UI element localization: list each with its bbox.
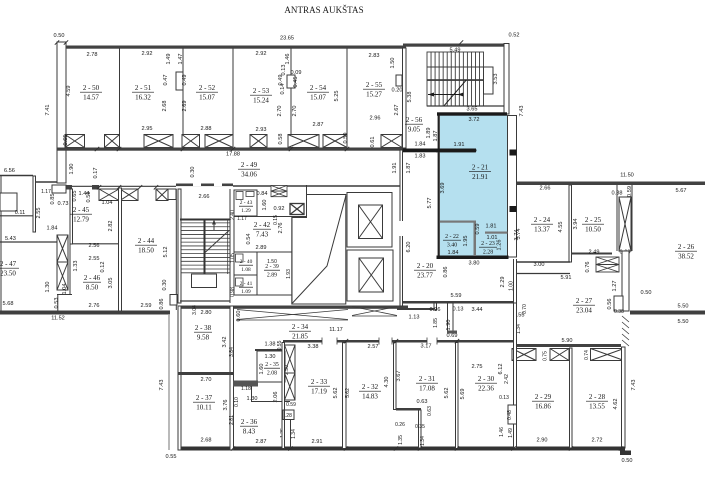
svg-text:1.17: 1.17	[237, 216, 247, 222]
svg-text:2 - 36: 2 - 36	[241, 418, 258, 426]
svg-text:1.27: 1.27	[612, 281, 618, 292]
svg-text:1.34: 1.34	[291, 429, 297, 439]
svg-text:21.91: 21.91	[472, 173, 488, 181]
svg-text:0.86: 0.86	[159, 299, 165, 310]
svg-text:6.56: 6.56	[4, 168, 15, 174]
svg-text:3.04: 3.04	[192, 305, 198, 315]
svg-text:2 - 38: 2 - 38	[195, 324, 212, 332]
svg-text:2.90: 2.90	[537, 438, 548, 444]
svg-text:11.52: 11.52	[51, 316, 65, 322]
svg-text:2.56: 2.56	[89, 243, 100, 249]
svg-text:3.67: 3.67	[396, 371, 402, 382]
svg-text:5.50: 5.50	[678, 304, 689, 310]
svg-text:2 - 45: 2 - 45	[73, 206, 90, 214]
svg-text:1.04: 1.04	[102, 200, 113, 206]
svg-text:0.12: 0.12	[100, 262, 106, 273]
svg-text:0.86: 0.86	[443, 267, 449, 278]
svg-text:7.43: 7.43	[256, 231, 269, 239]
svg-text:1.84: 1.84	[47, 226, 58, 232]
svg-text:0.58: 0.58	[278, 134, 284, 145]
svg-text:2.76: 2.76	[89, 303, 100, 309]
svg-text:0.14: 0.14	[280, 84, 286, 95]
svg-text:5.12: 5.12	[163, 247, 169, 258]
svg-text:4.30: 4.30	[384, 377, 390, 388]
svg-text:23.77: 23.77	[417, 272, 433, 280]
svg-text:1.84: 1.84	[415, 142, 426, 148]
svg-text:2 - 29: 2 - 29	[535, 393, 552, 401]
svg-text:16.86: 16.86	[535, 403, 551, 411]
svg-text:2.89: 2.89	[267, 273, 277, 279]
svg-text:0.59: 0.59	[475, 224, 481, 235]
svg-text:1.47: 1.47	[178, 54, 184, 65]
svg-text:0.13: 0.13	[453, 307, 464, 313]
svg-text:5.62: 5.62	[345, 388, 351, 398]
svg-text:5.38: 5.38	[407, 92, 413, 103]
svg-text:2.08: 2.08	[267, 370, 277, 376]
svg-text:2.83: 2.83	[369, 53, 380, 59]
svg-text:1.60: 1.60	[259, 364, 265, 375]
svg-text:2.68: 2.68	[162, 101, 168, 112]
svg-text:1.13: 1.13	[409, 315, 420, 321]
svg-text:1.60: 1.60	[262, 200, 268, 211]
svg-text:2.59: 2.59	[141, 303, 152, 309]
svg-text:22.36: 22.36	[478, 385, 494, 393]
svg-text:2.70: 2.70	[292, 106, 298, 117]
svg-text:2.87: 2.87	[256, 439, 267, 445]
svg-text:2.29: 2.29	[500, 277, 506, 288]
svg-text:1.90: 1.90	[446, 320, 452, 331]
svg-text:4.59: 4.59	[66, 86, 72, 97]
svg-text:34.06: 34.06	[241, 171, 257, 179]
svg-text:7.43: 7.43	[519, 106, 525, 117]
svg-text:1.04: 1.04	[62, 284, 68, 295]
svg-text:2 - 34: 2 - 34	[292, 323, 309, 331]
svg-text:0.59: 0.59	[343, 133, 349, 144]
svg-text:2 - 30: 2 - 30	[478, 375, 495, 383]
svg-text:0.15: 0.15	[273, 215, 279, 225]
svg-text:0.45: 0.45	[293, 77, 299, 88]
svg-text:3.38: 3.38	[308, 344, 319, 350]
svg-text:0.50: 0.50	[641, 290, 652, 296]
svg-text:2 - 42: 2 - 42	[254, 221, 271, 229]
svg-text:0.13: 0.13	[499, 395, 509, 401]
svg-text:3.74: 3.74	[516, 229, 522, 240]
svg-text:2 - 52: 2 - 52	[199, 84, 216, 92]
svg-text:4.62: 4.62	[613, 399, 619, 410]
svg-text:23.50: 23.50	[0, 270, 16, 278]
svg-text:23.65: 23.65	[280, 36, 294, 42]
svg-text:0.20: 0.20	[392, 88, 403, 94]
svg-text:7.41: 7.41	[45, 105, 51, 116]
svg-text:3.69: 3.69	[440, 183, 446, 194]
svg-text:2.80: 2.80	[201, 310, 212, 316]
svg-text:2.66: 2.66	[199, 194, 210, 200]
svg-text:0.59: 0.59	[286, 402, 296, 408]
svg-text:0.59: 0.59	[627, 186, 633, 197]
svg-text:2 - 55: 2 - 55	[366, 81, 383, 89]
svg-text:3.80: 3.80	[469, 261, 480, 267]
svg-text:12.79: 12.79	[73, 216, 89, 224]
svg-text:0.75: 0.75	[543, 351, 549, 361]
svg-text:1.83: 1.83	[415, 154, 426, 160]
svg-text:1.95: 1.95	[463, 236, 469, 247]
svg-text:0.60: 0.60	[236, 311, 242, 322]
svg-text:18.50: 18.50	[138, 247, 154, 255]
svg-text:2.40: 2.40	[230, 210, 236, 220]
svg-text:15.07: 15.07	[310, 94, 326, 102]
svg-text:0.74: 0.74	[584, 350, 590, 360]
svg-text:2.28: 2.28	[483, 249, 493, 255]
svg-text:1.93: 1.93	[286, 269, 292, 279]
svg-text:1.29: 1.29	[241, 208, 251, 214]
svg-text:1.33: 1.33	[73, 261, 79, 272]
svg-text:1.50: 1.50	[267, 259, 277, 265]
svg-text:0.61: 0.61	[370, 137, 376, 148]
svg-text:2 - 33: 2 - 33	[311, 378, 328, 386]
svg-text:5.25: 5.25	[334, 91, 340, 102]
svg-text:2 - 32: 2 - 32	[362, 383, 379, 391]
svg-text:0.63: 0.63	[417, 399, 428, 405]
svg-text:2 - 40: 2 - 40	[240, 259, 253, 265]
svg-text:13.55: 13.55	[589, 403, 605, 411]
svg-text:0.53: 0.53	[54, 298, 60, 309]
svg-text:0.49: 0.49	[182, 75, 188, 86]
svg-text:0.30: 0.30	[162, 280, 168, 291]
svg-text:2.93: 2.93	[256, 127, 267, 133]
svg-text:3.42: 3.42	[222, 337, 228, 348]
svg-text:0.52: 0.52	[509, 33, 520, 39]
svg-text:0.09: 0.09	[291, 70, 302, 76]
svg-text:14.57: 14.57	[83, 94, 99, 102]
svg-text:5.68: 5.68	[3, 301, 14, 307]
svg-text:0.59: 0.59	[86, 192, 92, 203]
svg-text:0.92: 0.92	[274, 206, 285, 212]
svg-text:13.37: 13.37	[534, 226, 550, 234]
svg-text:0.70: 0.70	[522, 304, 528, 314]
svg-text:3.53: 3.53	[493, 74, 499, 85]
svg-text:11.17: 11.17	[329, 327, 343, 333]
svg-text:2.95: 2.95	[142, 126, 153, 132]
svg-text:5.59: 5.59	[451, 293, 462, 299]
svg-text:1.09: 1.09	[241, 289, 251, 295]
svg-text:1.38: 1.38	[265, 342, 276, 348]
svg-text:17.88: 17.88	[226, 152, 240, 158]
svg-text:0.65: 0.65	[72, 191, 78, 202]
svg-text:6.20: 6.20	[406, 242, 412, 253]
svg-text:2 - 21: 2 - 21	[472, 164, 489, 172]
svg-text:0.73: 0.73	[58, 201, 69, 207]
svg-text:2 - 28: 2 - 28	[589, 393, 606, 401]
svg-text:2.96: 2.96	[370, 116, 381, 122]
svg-text:2.66: 2.66	[540, 186, 551, 192]
svg-text:2 - 43: 2 - 43	[240, 200, 253, 206]
svg-text:11.50: 11.50	[620, 173, 634, 179]
svg-text:1.81: 1.81	[486, 224, 497, 230]
svg-text:5.90: 5.90	[562, 338, 573, 344]
svg-text:2 - 46: 2 - 46	[84, 274, 101, 282]
svg-text:21.85: 21.85	[292, 333, 308, 341]
svg-text:1.30: 1.30	[265, 354, 276, 360]
svg-text:0.47: 0.47	[163, 75, 169, 86]
svg-text:2 - 44: 2 - 44	[138, 237, 155, 245]
svg-text:17.08: 17.08	[419, 385, 435, 393]
svg-text:2.87: 2.87	[313, 122, 324, 128]
svg-text:10.50: 10.50	[585, 226, 601, 234]
svg-text:1.91: 1.91	[392, 163, 398, 174]
svg-text:1.87: 1.87	[406, 163, 412, 174]
svg-text:0.56: 0.56	[607, 299, 613, 310]
svg-text:8.50: 8.50	[86, 284, 99, 292]
svg-text:2.70: 2.70	[201, 377, 212, 383]
svg-text:16.32: 16.32	[135, 94, 151, 102]
svg-text:1.18: 1.18	[241, 386, 251, 392]
svg-text:0.10: 0.10	[234, 397, 240, 407]
svg-text:5.77: 5.77	[427, 198, 433, 209]
svg-text:3.05: 3.05	[108, 278, 114, 289]
svg-text:1.49: 1.49	[508, 428, 514, 438]
svg-text:14.83: 14.83	[362, 393, 378, 401]
svg-text:ANTRAS AUKŠTAS: ANTRAS AUKŠTAS	[284, 5, 363, 15]
svg-text:5.49: 5.49	[450, 47, 461, 53]
svg-text:1.30: 1.30	[45, 282, 51, 293]
svg-text:17.19: 17.19	[311, 388, 327, 396]
svg-text:0.76: 0.76	[585, 262, 591, 273]
svg-text:7.43: 7.43	[631, 380, 637, 391]
svg-text:2.78: 2.78	[87, 52, 98, 58]
svg-text:4.55: 4.55	[558, 222, 564, 233]
svg-text:7.43: 7.43	[159, 380, 165, 391]
svg-text:5.69: 5.69	[460, 389, 466, 400]
svg-text:3.40: 3.40	[447, 242, 457, 248]
svg-text:0.38: 0.38	[612, 191, 623, 197]
svg-text:1.50: 1.50	[390, 58, 396, 69]
svg-text:0.54: 0.54	[246, 234, 252, 245]
svg-text:2 - 25: 2 - 25	[585, 216, 602, 224]
svg-text:1.34: 1.34	[420, 436, 426, 446]
svg-text:5.91: 5.91	[561, 275, 572, 281]
svg-text:2 - 47: 2 - 47	[0, 260, 17, 268]
svg-text:2.89: 2.89	[256, 245, 267, 251]
svg-text:10.11: 10.11	[196, 404, 212, 412]
svg-text:2 - 22: 2 - 22	[445, 234, 459, 240]
svg-text:2.82: 2.82	[108, 221, 114, 232]
svg-text:2.69: 2.69	[182, 101, 188, 112]
svg-text:2 - 24: 2 - 24	[534, 216, 551, 224]
svg-text:5.62: 5.62	[333, 388, 339, 399]
svg-text:5.67: 5.67	[676, 188, 687, 194]
svg-text:2 - 31: 2 - 31	[419, 375, 436, 383]
svg-text:2 - 35: 2 - 35	[265, 362, 279, 368]
svg-text:2 - 37: 2 - 37	[196, 394, 213, 402]
svg-text:3.44: 3.44	[472, 307, 483, 313]
svg-text:3.00: 3.00	[534, 262, 545, 268]
svg-text:0.13: 0.13	[281, 65, 287, 76]
svg-text:1.46: 1.46	[285, 54, 291, 65]
svg-text:0.84: 0.84	[257, 191, 268, 197]
svg-text:2 - 23: 2 - 23	[481, 241, 495, 247]
svg-text:2.70: 2.70	[277, 106, 283, 117]
svg-text:2.68: 2.68	[201, 438, 212, 444]
svg-text:1.08: 1.08	[241, 267, 251, 273]
svg-text:0.11: 0.11	[15, 210, 25, 216]
svg-text:2 - 49: 2 - 49	[241, 161, 258, 169]
svg-text:1.00: 1.00	[509, 281, 515, 291]
svg-text:0.35: 0.35	[415, 424, 425, 430]
svg-text:2.81: 2.81	[229, 415, 235, 425]
svg-text:1.89: 1.89	[426, 128, 432, 139]
svg-text:2 - 27: 2 - 27	[576, 297, 593, 305]
svg-text:0.48: 0.48	[507, 410, 513, 420]
svg-text:0.26: 0.26	[395, 422, 405, 428]
svg-text:2 - 20: 2 - 20	[417, 262, 434, 270]
svg-text:1.91: 1.91	[454, 142, 465, 148]
svg-text:3.94: 3.94	[573, 219, 579, 230]
svg-text:2.75: 2.75	[472, 364, 483, 370]
svg-text:3.17: 3.17	[421, 344, 432, 350]
svg-text:0.65: 0.65	[63, 135, 69, 146]
svg-text:2.92: 2.92	[256, 51, 267, 57]
svg-text:9.05: 9.05	[408, 126, 421, 134]
svg-text:2 - 26: 2 - 26	[678, 243, 695, 251]
svg-text:38.52: 38.52	[678, 253, 694, 261]
svg-text:1.84: 1.84	[448, 250, 459, 256]
svg-text:9.58: 9.58	[197, 334, 210, 342]
svg-text:2.88: 2.88	[201, 126, 212, 132]
svg-text:2.55: 2.55	[36, 208, 42, 219]
svg-text:0.38: 0.38	[614, 309, 624, 315]
svg-text:5.50: 5.50	[678, 319, 689, 325]
svg-text:2 - 50: 2 - 50	[83, 84, 100, 92]
svg-text:2 - 41: 2 - 41	[240, 281, 253, 287]
svg-text:2 - 51: 2 - 51	[135, 84, 152, 92]
svg-text:15.27: 15.27	[366, 91, 382, 99]
svg-text:2 - 56: 2 - 56	[406, 116, 423, 124]
svg-text:23.04: 23.04	[576, 307, 592, 315]
svg-text:2.49: 2.49	[589, 250, 600, 256]
svg-text:0.30: 0.30	[190, 167, 196, 178]
svg-text:2 - 53: 2 - 53	[253, 87, 270, 95]
svg-text:2.55: 2.55	[89, 256, 100, 262]
svg-text:1.49: 1.49	[166, 54, 172, 65]
svg-text:1.46: 1.46	[499, 427, 505, 437]
svg-text:3.76: 3.76	[223, 400, 229, 411]
svg-text:1.35: 1.35	[398, 435, 404, 445]
svg-text:1.85: 1.85	[433, 318, 439, 328]
svg-text:1.26: 1.26	[497, 240, 503, 251]
svg-text:3.72: 3.72	[469, 117, 480, 123]
svg-text:5.62: 5.62	[444, 388, 450, 399]
svg-text:0.17: 0.17	[93, 168, 99, 179]
svg-text:0.63: 0.63	[427, 406, 433, 416]
svg-text:2.91: 2.91	[312, 439, 323, 445]
svg-text:2.06: 2.06	[273, 392, 279, 403]
svg-text:2.57: 2.57	[368, 344, 379, 350]
svg-text:5.43: 5.43	[5, 236, 16, 242]
svg-text:1.90: 1.90	[69, 164, 75, 175]
svg-text:2.92: 2.92	[142, 51, 153, 57]
svg-text:8.43: 8.43	[243, 428, 256, 436]
svg-text:0.50: 0.50	[54, 33, 65, 39]
svg-text:3.65: 3.65	[467, 107, 478, 113]
svg-text:0.96: 0.96	[430, 307, 441, 313]
svg-text:0.50: 0.50	[622, 458, 633, 464]
svg-text:3.84: 3.84	[229, 347, 235, 357]
svg-text:15.24: 15.24	[253, 97, 269, 105]
svg-text:1.87: 1.87	[433, 131, 439, 142]
svg-text:6.12: 6.12	[498, 364, 504, 375]
svg-text:15.07: 15.07	[199, 94, 215, 102]
svg-text:0.85: 0.85	[50, 194, 56, 205]
svg-text:0.69: 0.69	[447, 333, 458, 339]
svg-text:2.67: 2.67	[394, 105, 400, 116]
svg-text:2.72: 2.72	[592, 438, 603, 444]
svg-text:2 - 54: 2 - 54	[310, 84, 327, 92]
svg-text:2.42: 2.42	[504, 374, 510, 384]
svg-text:0.55: 0.55	[166, 454, 177, 460]
